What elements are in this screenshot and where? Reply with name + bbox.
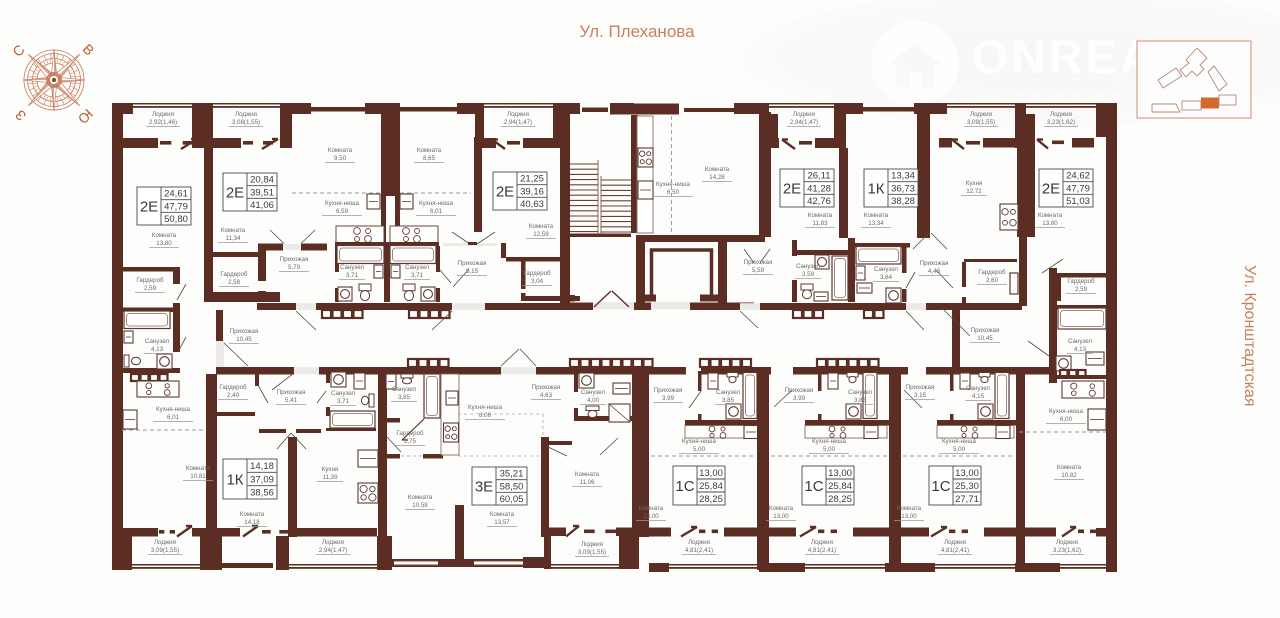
svg-text:Гардероб: Гардероб xyxy=(396,430,424,437)
svg-text:13,00: 13,00 xyxy=(955,468,979,479)
svg-text:2,59: 2,59 xyxy=(144,285,157,292)
svg-text:Лоджия: Лоджия xyxy=(811,539,833,546)
svg-text:Комната: Комната xyxy=(1057,464,1082,471)
svg-text:Санузел: Санузел xyxy=(966,385,990,392)
svg-text:Комната: Комната xyxy=(490,511,515,518)
svg-text:2Е: 2Е xyxy=(140,199,158,216)
svg-text:5,00: 5,00 xyxy=(823,446,836,453)
svg-text:5,59: 5,59 xyxy=(752,267,765,274)
svg-text:Кухня-ниша: Кухня-ниша xyxy=(1049,408,1083,415)
svg-text:4,43: 4,43 xyxy=(928,268,941,275)
svg-text:Гардероб: Гардероб xyxy=(220,271,248,278)
svg-text:14,28: 14,28 xyxy=(709,174,725,181)
svg-text:37,09: 37,09 xyxy=(250,474,274,485)
svg-text:Прихожая: Прихожая xyxy=(971,327,1000,334)
svg-text:38,56: 38,56 xyxy=(250,488,274,499)
svg-text:Прихожая: Прихожая xyxy=(277,389,306,396)
svg-text:Кухня-ниша: Кухня-ниша xyxy=(419,200,453,207)
svg-text:13,57: 13,57 xyxy=(494,519,510,526)
svg-text:4,15: 4,15 xyxy=(972,393,985,400)
svg-text:Кухня-ниша: Кухня-ниша xyxy=(682,438,716,445)
svg-text:Кухня-ниша: Кухня-ниша xyxy=(656,181,690,188)
svg-text:3,15: 3,15 xyxy=(914,392,927,399)
svg-text:6,59: 6,59 xyxy=(336,208,349,215)
svg-text:Лоджия: Лоджия xyxy=(793,111,815,118)
svg-text:3,71: 3,71 xyxy=(337,398,350,405)
svg-text:3,09(1,55): 3,09(1,55) xyxy=(578,549,606,556)
svg-text:Прихожая: Прихожая xyxy=(906,384,935,391)
svg-text:Комната: Комната xyxy=(808,212,833,219)
svg-text:13,34: 13,34 xyxy=(868,220,884,227)
svg-text:Комната: Комната xyxy=(575,471,600,478)
svg-text:Комната: Комната xyxy=(897,505,922,512)
svg-text:Прихожая: Прихожая xyxy=(458,260,487,267)
svg-text:Санузел: Санузел xyxy=(874,266,898,273)
svg-text:24,61: 24,61 xyxy=(164,189,188,200)
svg-text:Лоджия: Лоджия xyxy=(235,111,257,118)
svg-text:6,50: 6,50 xyxy=(667,189,680,196)
svg-text:2,58: 2,58 xyxy=(228,279,241,286)
svg-text:Прихожая: Прихожая xyxy=(654,387,683,394)
svg-text:3,04: 3,04 xyxy=(531,278,544,285)
svg-text:40,63: 40,63 xyxy=(520,199,544,210)
svg-text:Санузел: Санузел xyxy=(796,263,820,270)
svg-text:3Е: 3Е xyxy=(475,479,493,496)
svg-text:13,34: 13,34 xyxy=(891,171,915,182)
svg-text:4,63: 4,63 xyxy=(540,392,553,399)
svg-text:Кухня-ниша: Кухня-ниша xyxy=(468,404,502,411)
svg-text:Санузел: Санузел xyxy=(340,264,364,271)
svg-text:Комната: Комната xyxy=(864,212,889,219)
svg-text:26,11: 26,11 xyxy=(807,171,830,182)
svg-text:20,84: 20,84 xyxy=(250,175,274,186)
svg-text:3,09(1,55): 3,09(1,55) xyxy=(967,119,995,126)
svg-text:Санузел: Санузел xyxy=(405,264,429,271)
svg-text:13,00: 13,00 xyxy=(828,468,852,479)
svg-text:13,80: 13,80 xyxy=(156,240,172,247)
svg-text:21,25: 21,25 xyxy=(520,174,544,185)
svg-text:5,00: 5,00 xyxy=(693,446,706,453)
svg-text:10,45: 10,45 xyxy=(977,335,993,342)
svg-text:13,00: 13,00 xyxy=(643,513,659,520)
svg-text:Кухня-ниша: Кухня-ниша xyxy=(156,406,190,413)
svg-text:Комната: Комната xyxy=(639,505,664,512)
svg-text:5,41: 5,41 xyxy=(285,397,298,404)
svg-text:Кухня: Кухня xyxy=(966,180,983,187)
svg-text:Ул. Кронштадтская: Ул. Кронштадтская xyxy=(1241,265,1258,407)
svg-text:2Е: 2Е xyxy=(226,185,244,202)
svg-text:Кухня: Кухня xyxy=(322,466,339,473)
svg-text:Комната: Комната xyxy=(408,494,433,501)
svg-text:Прихожая: Прихожая xyxy=(744,259,773,266)
svg-text:Санузел: Санузел xyxy=(848,389,872,396)
svg-text:Гардероб: Гардероб xyxy=(136,277,164,284)
svg-text:13,00: 13,00 xyxy=(773,513,789,520)
svg-text:Прихожая: Прихожая xyxy=(785,387,814,394)
svg-text:10,45: 10,45 xyxy=(236,336,252,343)
svg-text:Комната: Комната xyxy=(328,147,353,154)
svg-text:6,00: 6,00 xyxy=(1060,416,1073,423)
svg-text:11,83: 11,83 xyxy=(812,220,828,227)
svg-text:5,79: 5,79 xyxy=(288,264,301,271)
svg-text:39,16: 39,16 xyxy=(520,186,544,197)
svg-text:Санузел: Санузел xyxy=(331,390,355,397)
svg-text:Комната: Комната xyxy=(769,505,794,512)
svg-text:38,28: 38,28 xyxy=(891,196,915,207)
svg-text:3,09(1,55): 3,09(1,55) xyxy=(151,547,179,554)
svg-text:8,65: 8,65 xyxy=(423,155,436,162)
svg-text:27,71: 27,71 xyxy=(955,494,979,505)
svg-text:5,00: 5,00 xyxy=(953,446,966,453)
svg-text:1С: 1С xyxy=(931,478,950,495)
svg-text:3,23(1,62): 3,23(1,62) xyxy=(1053,547,1081,554)
svg-text:2Е: 2Е xyxy=(783,181,801,198)
svg-text:Санузел: Санузел xyxy=(581,389,605,396)
svg-text:24,62: 24,62 xyxy=(1066,171,1090,182)
svg-text:3,85: 3,85 xyxy=(722,397,735,404)
svg-text:Санузел: Санузел xyxy=(1068,338,1092,345)
svg-text:28,25: 28,25 xyxy=(699,494,723,505)
svg-text:3,85: 3,85 xyxy=(854,397,867,404)
svg-text:4,81(2,41): 4,81(2,41) xyxy=(685,547,713,554)
svg-text:Комната: Комната xyxy=(186,465,211,472)
svg-text:4,00: 4,00 xyxy=(587,397,600,404)
svg-text:Гардероб: Гардероб xyxy=(978,269,1006,276)
svg-text:12,72: 12,72 xyxy=(966,188,982,195)
svg-text:3,64: 3,64 xyxy=(880,274,893,281)
svg-text:25,84: 25,84 xyxy=(699,481,723,492)
svg-text:Комната: Комната xyxy=(417,147,442,154)
svg-text:14,18: 14,18 xyxy=(244,519,260,526)
svg-text:Лоджия: Лоджия xyxy=(322,539,344,546)
svg-text:Лоджия: Лоджия xyxy=(1050,111,1072,118)
svg-text:41,06: 41,06 xyxy=(250,200,274,211)
svg-text:Лоджия: Лоджия xyxy=(154,539,176,546)
svg-text:35,21: 35,21 xyxy=(500,469,524,480)
svg-text:47,79: 47,79 xyxy=(164,201,188,212)
svg-text:3,85: 3,85 xyxy=(398,394,411,401)
svg-text:Прихожая: Прихожая xyxy=(280,256,309,263)
svg-text:Кухня-ниша: Кухня-ниша xyxy=(812,438,846,445)
svg-text:Санузел: Санузел xyxy=(392,386,416,393)
svg-text:39,51: 39,51 xyxy=(250,187,274,198)
svg-text:50,80: 50,80 xyxy=(164,214,188,225)
svg-text:6,01: 6,01 xyxy=(430,208,443,215)
svg-text:47,79: 47,79 xyxy=(1066,183,1090,194)
svg-text:Комната: Комната xyxy=(705,166,730,173)
svg-text:Лоджия: Лоджия xyxy=(944,539,966,546)
svg-text:Лоджия: Лоджия xyxy=(507,111,529,118)
svg-text:25,84: 25,84 xyxy=(828,481,852,492)
svg-text:Прихожая: Прихожая xyxy=(532,384,561,391)
svg-text:Гардероб: Гардероб xyxy=(219,384,247,391)
svg-text:Лоджия: Лоджия xyxy=(581,541,603,548)
svg-text:Кухня-ниша: Кухня-ниша xyxy=(325,200,359,207)
svg-text:2,94(1,47): 2,94(1,47) xyxy=(319,547,347,554)
svg-text:Комната: Комната xyxy=(221,227,246,234)
svg-text:1С: 1С xyxy=(804,478,823,495)
svg-text:2,94(1,47): 2,94(1,47) xyxy=(790,119,818,126)
svg-text:10,81: 10,81 xyxy=(190,473,206,480)
svg-text:10,82: 10,82 xyxy=(1061,472,1077,479)
svg-text:Гардероб: Гардероб xyxy=(523,270,551,277)
svg-text:13,80: 13,80 xyxy=(1042,220,1058,227)
svg-text:11,39: 11,39 xyxy=(322,474,338,481)
svg-text:2Е: 2Е xyxy=(496,184,514,201)
svg-text:36,73: 36,73 xyxy=(891,183,915,194)
svg-text:12,59: 12,59 xyxy=(533,231,549,238)
svg-text:4,81(2,41): 4,81(2,41) xyxy=(808,547,836,554)
svg-text:2,94(1,47): 2,94(1,47) xyxy=(504,119,532,126)
svg-text:Гардероб: Гардероб xyxy=(1067,278,1095,285)
svg-text:3,59: 3,59 xyxy=(802,271,815,278)
svg-text:Санузел: Санузел xyxy=(716,389,740,396)
svg-text:58,50: 58,50 xyxy=(500,481,524,492)
svg-text:3,71: 3,71 xyxy=(346,272,359,279)
svg-text:Прихожая: Прихожая xyxy=(920,260,949,267)
svg-text:Лоджия: Лоджия xyxy=(1056,539,1078,546)
svg-text:Комната: Комната xyxy=(152,232,177,239)
svg-text:11,06: 11,06 xyxy=(579,479,595,486)
svg-text:11,34: 11,34 xyxy=(225,235,241,242)
svg-text:13,00: 13,00 xyxy=(699,468,723,479)
svg-text:60,05: 60,05 xyxy=(500,494,524,505)
svg-text:3,23(1,62): 3,23(1,62) xyxy=(1047,119,1075,126)
svg-text:2,59: 2,59 xyxy=(1075,286,1088,293)
svg-text:14,18: 14,18 xyxy=(250,461,274,472)
svg-text:6,01: 6,01 xyxy=(167,414,180,421)
svg-text:4,81(2,41): 4,81(2,41) xyxy=(941,547,969,554)
svg-text:9,50: 9,50 xyxy=(334,155,347,162)
svg-text:2,75: 2,75 xyxy=(404,438,417,445)
svg-text:2,60: 2,60 xyxy=(986,277,999,284)
svg-text:Лоджия: Лоджия xyxy=(970,111,992,118)
svg-text:1К: 1К xyxy=(867,181,884,198)
svg-text:Прихожая: Прихожая xyxy=(230,328,259,335)
svg-text:3,71: 3,71 xyxy=(411,272,424,279)
svg-text:41,28: 41,28 xyxy=(807,183,831,194)
svg-text:Лоджия: Лоджия xyxy=(152,111,174,118)
svg-text:51,03: 51,03 xyxy=(1066,196,1090,207)
svg-text:3,99: 3,99 xyxy=(793,395,806,402)
svg-text:1К: 1К xyxy=(226,472,243,489)
svg-text:5,15: 5,15 xyxy=(466,268,479,275)
svg-text:1С: 1С xyxy=(675,478,694,495)
svg-text:2,40: 2,40 xyxy=(227,392,240,399)
svg-text:Комната: Комната xyxy=(1038,212,1063,219)
svg-text:Лоджия: Лоджия xyxy=(688,539,710,546)
svg-text:4,13: 4,13 xyxy=(151,346,164,353)
svg-text:Кухня-ниша: Кухня-ниша xyxy=(942,438,976,445)
svg-text:25,30: 25,30 xyxy=(955,481,979,492)
svg-text:10,58: 10,58 xyxy=(412,502,428,509)
svg-text:13,00: 13,00 xyxy=(901,513,917,520)
svg-text:2Е: 2Е xyxy=(1042,181,1060,198)
svg-text:3,99: 3,99 xyxy=(662,395,675,402)
svg-text:3,08(1,55): 3,08(1,55) xyxy=(232,119,260,126)
svg-text:42,76: 42,76 xyxy=(807,196,831,207)
svg-text:Комната: Комната xyxy=(240,511,265,518)
svg-text:Санузел: Санузел xyxy=(145,338,169,345)
svg-text:Комната: Комната xyxy=(529,223,554,230)
svg-text:Ул. Плеханова: Ул. Плеханова xyxy=(579,22,695,41)
svg-text:4,13: 4,13 xyxy=(1074,346,1087,353)
svg-text:8,06: 8,06 xyxy=(479,412,492,419)
svg-text:28,25: 28,25 xyxy=(828,494,852,505)
svg-text:2,92(1,46): 2,92(1,46) xyxy=(149,119,177,126)
